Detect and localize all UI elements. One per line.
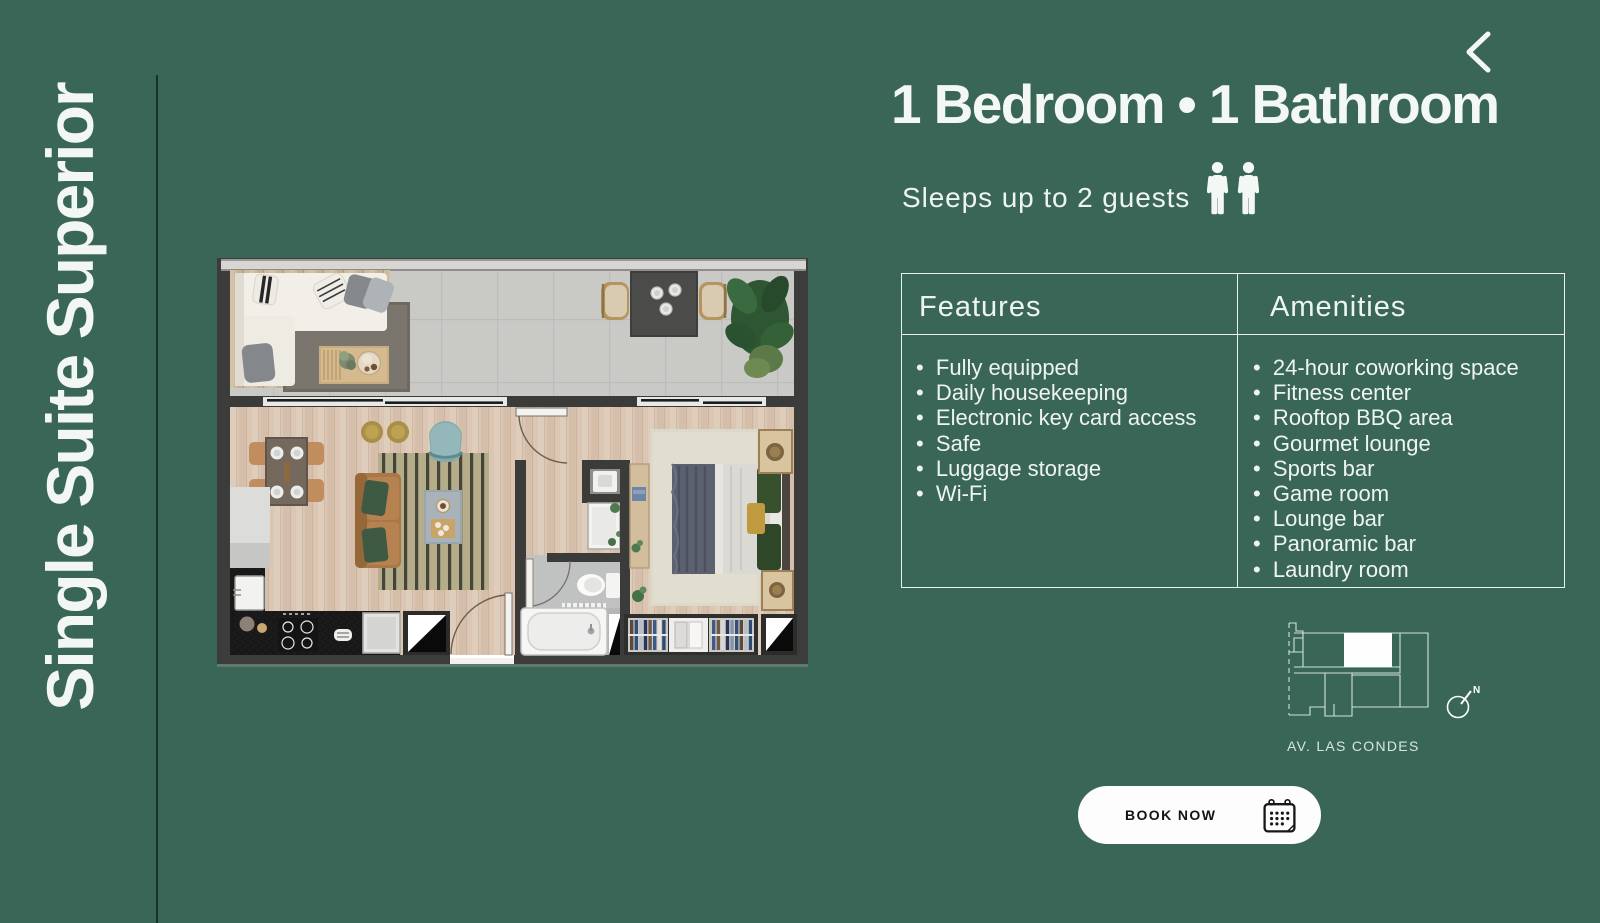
svg-text:N: N <box>1473 685 1480 696</box>
svg-text:AV. LAS CONDES: AV. LAS CONDES <box>1287 738 1420 754</box>
